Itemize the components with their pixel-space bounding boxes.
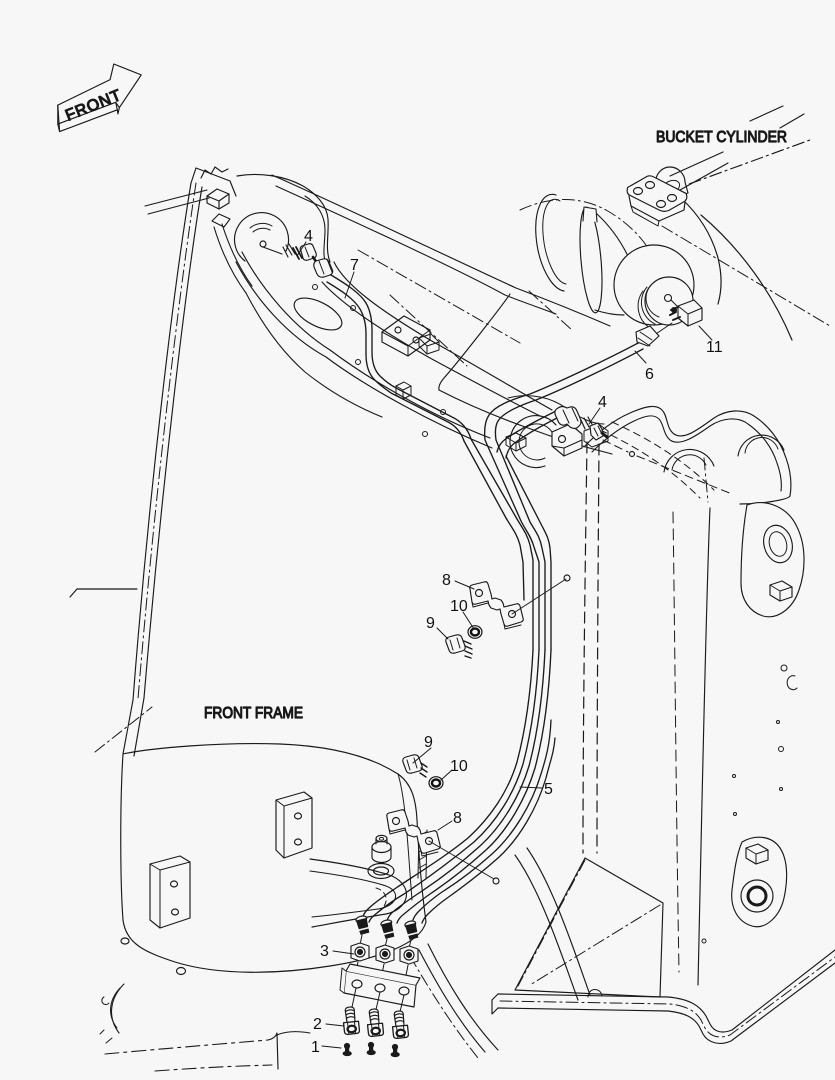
- svg-text:7: 7: [350, 257, 359, 274]
- svg-text:5: 5: [544, 781, 553, 798]
- svg-text:11: 11: [706, 339, 723, 356]
- svg-text:10: 10: [450, 758, 468, 775]
- svg-text:9: 9: [424, 734, 433, 751]
- svg-text:6: 6: [645, 366, 654, 383]
- svg-text:1: 1: [311, 1039, 320, 1056]
- svg-text:BUCKET CYLINDER: BUCKET CYLINDER: [656, 129, 787, 146]
- svg-text:4: 4: [304, 228, 313, 245]
- svg-text:4: 4: [598, 394, 607, 411]
- svg-text:8: 8: [442, 572, 451, 589]
- svg-text:3: 3: [320, 943, 329, 960]
- svg-text:8: 8: [453, 810, 462, 827]
- svg-text:FRONT FRAME: FRONT FRAME: [204, 705, 303, 722]
- svg-text:9: 9: [426, 615, 435, 632]
- svg-text:10: 10: [450, 598, 468, 615]
- svg-text:2: 2: [313, 1016, 322, 1033]
